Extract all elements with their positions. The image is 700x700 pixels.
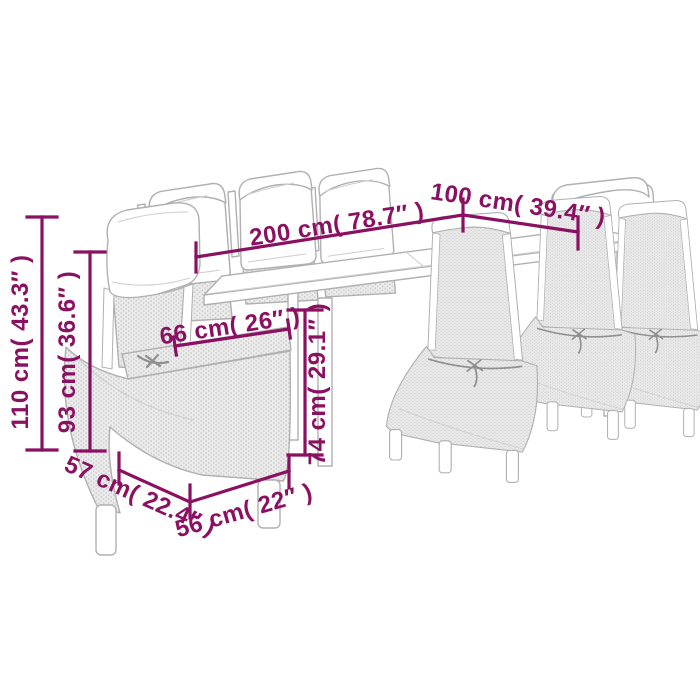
near-side-chairs — [386, 197, 700, 483]
dimension-label: 93 cm( 36.6″ ) — [54, 271, 81, 434]
dimension-overall-height: 110 cm( 43.3″ ) — [7, 217, 57, 450]
diagram-canvas: 110 cm( 43.3″ ) 93 cm( 36.6″ ) 200 cm( 7… — [0, 0, 700, 700]
product-dimension-diagram: 110 cm( 43.3″ ) 93 cm( 36.6″ ) 200 cm( 7… — [0, 0, 700, 700]
dimension-label: 110 cm( 43.3″ ) — [7, 254, 34, 429]
dimension-label: 74 cm( 29.1″ ) — [304, 303, 331, 466]
dimension-label: 56 cm( 22″ ) — [172, 478, 316, 543]
